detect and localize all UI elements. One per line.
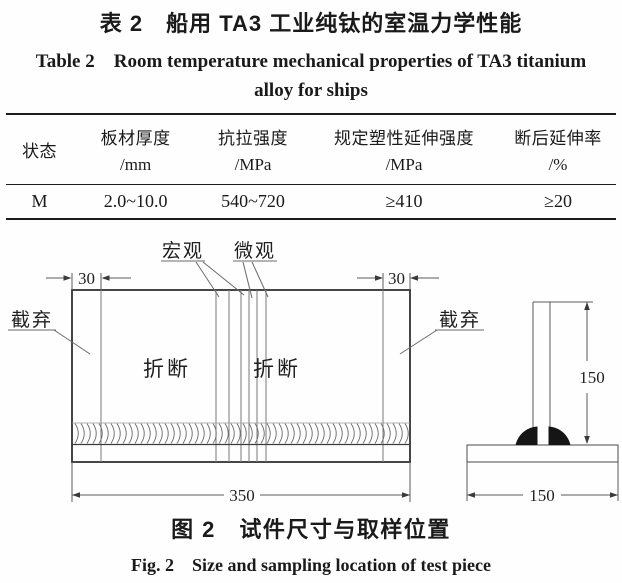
column-unit: /% bbox=[549, 155, 568, 175]
dimension-arrowheads bbox=[64, 275, 619, 497]
column-header-state: 状态 bbox=[6, 115, 73, 184]
dim-30-right-value: 30 bbox=[388, 269, 405, 288]
dim-150-horizontal-value: 150 bbox=[529, 486, 555, 505]
dim-350-value: 350 bbox=[229, 486, 255, 505]
column-header-tensile-strength: 抗拉强度 /MPa bbox=[198, 115, 308, 184]
column-label: 断后延伸率 bbox=[514, 124, 602, 149]
paper-page: 表 2 船用 TA3 工业纯钛的室温力学性能 Table 2 Room temp… bbox=[0, 0, 622, 583]
column-unit: /MPa bbox=[235, 155, 272, 175]
column-header-elongation: 断后延伸率 /% bbox=[500, 115, 616, 184]
table-header-row: 状态 板材厚度 /mm 抗拉强度 /MPa 规定塑性延伸强度 /MPa 断后延伸… bbox=[6, 113, 616, 185]
table-caption-en-line1: Table 2 Room temperature mechanical prop… bbox=[0, 46, 622, 73]
column-unit: /MPa bbox=[386, 155, 423, 175]
column-label: 状态 bbox=[22, 137, 57, 162]
column-header-proof-strength: 规定塑性延伸强度 /MPa bbox=[308, 115, 500, 184]
figure-caption-zh: 图 2 试件尺寸与取样位置 bbox=[0, 512, 622, 544]
table-caption-en-line2: alloy for ships bbox=[0, 80, 622, 102]
test-piece-diagram: 宏观 微观 截弃 截弃 折断 折断 30 30 350 150 150 bbox=[0, 233, 622, 511]
mechanical-properties-table: 状态 板材厚度 /mm 抗拉强度 /MPa 规定塑性延伸强度 /MPa 断后延伸… bbox=[6, 113, 616, 220]
cell-state: M bbox=[6, 191, 73, 212]
micro-label: 微观 bbox=[234, 240, 276, 262]
discard-label-right: 截弃 bbox=[439, 309, 481, 331]
dim-30-left-value: 30 bbox=[78, 269, 95, 288]
column-header-thickness: 板材厚度 /mm bbox=[73, 115, 198, 184]
weld-fillet-blobs bbox=[516, 427, 571, 446]
table-caption-zh: 表 2 船用 TA3 工业纯钛的室温力学性能 bbox=[0, 6, 622, 38]
column-unit: /mm bbox=[120, 155, 151, 175]
column-label: 规定塑性延伸强度 bbox=[334, 124, 474, 149]
tjoint-web-plate bbox=[533, 302, 593, 428]
cell-elongation: ≥20 bbox=[500, 191, 616, 212]
cell-thickness: 2.0~10.0 bbox=[73, 191, 198, 212]
break-label-left: 折断 bbox=[143, 358, 191, 381]
macro-label: 宏观 bbox=[162, 240, 204, 262]
cell-proof-strength: ≥410 bbox=[308, 191, 500, 212]
column-label: 板材厚度 bbox=[101, 124, 171, 149]
dim-150-vertical-value: 150 bbox=[579, 368, 605, 387]
figure-caption-en: Fig. 2 Size and sampling location of tes… bbox=[0, 551, 622, 577]
cell-tensile-strength: 540~720 bbox=[198, 191, 308, 212]
tjoint-flange-plate bbox=[467, 445, 618, 462]
weld-seam-arcs bbox=[75, 424, 408, 444]
discard-label-left: 截弃 bbox=[11, 309, 53, 331]
break-label-right: 折断 bbox=[253, 358, 301, 381]
table-data-row: M 2.0~10.0 540~720 ≥410 ≥20 bbox=[6, 185, 616, 220]
column-label: 抗拉强度 bbox=[218, 124, 288, 149]
